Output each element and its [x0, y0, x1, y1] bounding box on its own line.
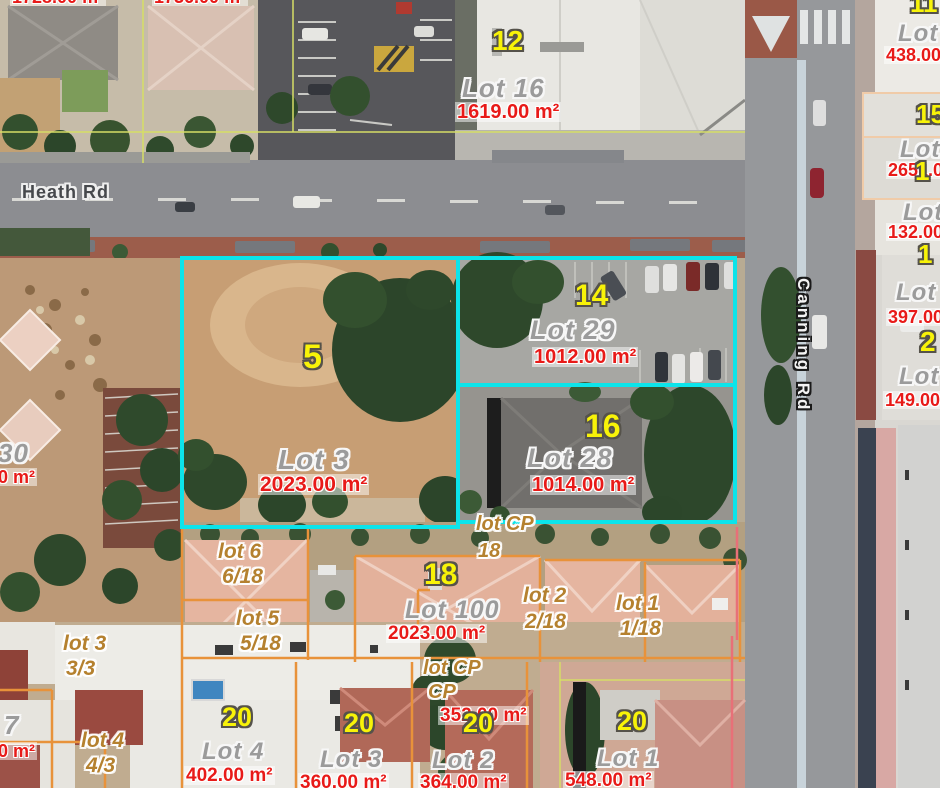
- lot-area-label: 1014.00 m²: [530, 475, 636, 495]
- strata-lot-label: 1/18: [620, 618, 661, 639]
- lot-area-label: 1728.00 m²: [10, 0, 106, 6]
- lot-name-label: Lot 2: [432, 749, 494, 773]
- left-block: [0, 228, 186, 622]
- lot-area-label: 149.00 m²: [883, 391, 940, 409]
- heath-road: [0, 150, 760, 261]
- strata-lot-label: 6/18: [222, 566, 263, 587]
- lot-area-label: 1619.00 m²: [455, 102, 561, 122]
- lot-area-label: 402.00 m²: [184, 766, 275, 785]
- street-number-label: 5: [303, 340, 322, 375]
- strata-lot-label: lot 4: [81, 730, 124, 751]
- strata-lot-label: lot 2: [523, 585, 566, 606]
- strata-lot-label: 4/3: [86, 755, 115, 776]
- lot-name-label: Lot: [898, 22, 938, 46]
- strata-lot-label: lot CP: [423, 658, 481, 678]
- lot-area-label: 2023.00 m²: [386, 624, 487, 643]
- strata-lot-label: 2/18: [525, 611, 566, 632]
- lot-name-label: Lot 16: [462, 75, 545, 102]
- strata-lot-label: 3/3: [66, 658, 95, 679]
- map-viewport[interactable]: Heath RdCanning Rd1251416182020202011151…: [0, 0, 940, 788]
- lot-name-label: 30: [0, 440, 29, 467]
- lot-name-label: Lot: [899, 365, 939, 389]
- strata-lot-label: lot 1: [616, 593, 659, 614]
- street-number-label: 20: [344, 710, 374, 738]
- lot-name-label: Lot: [896, 281, 936, 305]
- lot-area-label: 1012.00 m²: [532, 347, 638, 367]
- street-number-label: 20: [222, 704, 252, 732]
- lot-area-label: 2651.00 m²: [886, 161, 940, 179]
- lot-name-label: 7: [4, 712, 19, 739]
- strata-lot-label: 5/18: [240, 633, 281, 654]
- lot-area-label: 548.00 m²: [563, 771, 654, 788]
- lot-area-label: 0 m²: [0, 468, 37, 486]
- street-number-label: 14: [575, 281, 608, 312]
- lot-name-label: Lot 4: [202, 740, 264, 764]
- lot-area-label: 397.00 m²: [886, 308, 940, 326]
- strata-lot-label: lot CP: [476, 514, 534, 534]
- street-number-label: 1: [915, 158, 929, 185]
- strata-lot-label: lot 3: [63, 633, 106, 654]
- top-left-residential: [0, 0, 270, 166]
- lot-area-label: 0 m²: [0, 742, 37, 760]
- top-parking-lot: [258, 0, 458, 162]
- lot-name-label: Lot 29: [530, 317, 616, 345]
- lot-name-label: Lot 1: [597, 747, 659, 771]
- lot-name-label: Lot 3: [320, 748, 382, 772]
- lot-name-label: Lot 100: [405, 598, 500, 624]
- street-number-label: 20: [463, 710, 493, 738]
- street-number-label: 15: [916, 101, 940, 128]
- strata-lot-label: lot 6: [218, 541, 261, 562]
- lot-area-label: 438.00 m²: [884, 46, 940, 64]
- street-number-label: 1: [918, 241, 932, 268]
- lot-area-label: 2023.00 m²: [258, 474, 369, 495]
- street-number-label: 2: [920, 328, 936, 357]
- lot-area-label: 360.00 m²: [298, 773, 389, 788]
- lot-name-label: Lot 28: [527, 445, 613, 473]
- lot-area-label: 1736.00 m²: [152, 0, 248, 6]
- lot-area-label: 364.00 m²: [418, 773, 509, 788]
- lot-name-label: Lot 3: [278, 446, 350, 475]
- strata-lot-label: lot 5: [236, 608, 279, 629]
- strata-lot-label: 18: [478, 541, 500, 561]
- street-number-label: 12: [492, 27, 523, 56]
- street-number-label: 16: [585, 410, 621, 443]
- street-number-label: 18: [424, 560, 457, 591]
- strata-lot-label: CP: [428, 682, 456, 702]
- street-number-label: 11: [910, 0, 938, 17]
- street-number-label: 20: [617, 708, 647, 736]
- street-name-label: Heath Rd: [22, 183, 109, 201]
- street-name-label: Canning Rd: [795, 278, 812, 413]
